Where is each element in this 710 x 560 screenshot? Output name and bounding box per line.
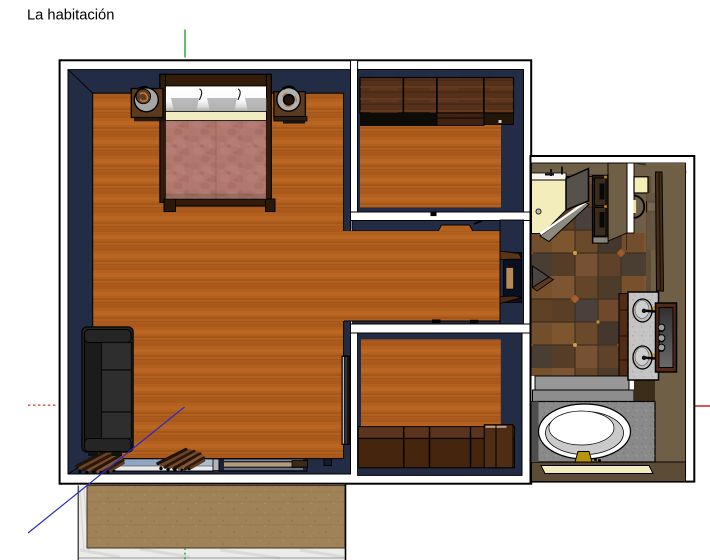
svg-text:La habitación: La habitación: [27, 8, 114, 24]
